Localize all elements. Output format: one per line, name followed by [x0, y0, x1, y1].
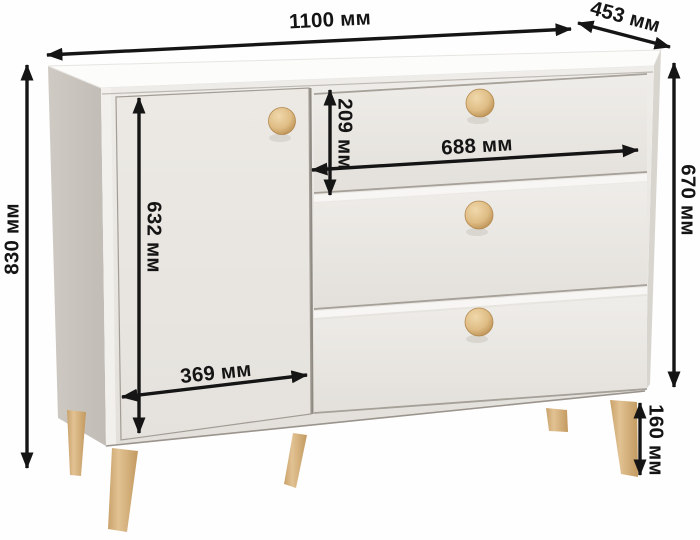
leg-front-right [610, 400, 638, 477]
door-knob [269, 108, 296, 135]
product-dimension-image: 1100 мм 453 мм 830 мм 670 мм 209 мм 688 … [0, 0, 700, 540]
dim-drawer-width-label: 688 мм [441, 132, 514, 159]
dim-leg-height-label: 160 мм [645, 404, 668, 475]
dim-overall-width-arrow [47, 29, 571, 55]
cabinet-left-side-panel [48, 66, 106, 446]
dim-drawer-height-label: 209 мм [334, 98, 357, 169]
leg-front-left [108, 448, 138, 532]
dimension-diagram-canvas: 1100 мм 453 мм 830 мм 670 мм 209 мм 688 … [0, 0, 700, 540]
leg-back-right [546, 408, 568, 432]
dim-overall-height-label: 830 мм [0, 203, 23, 274]
leg-front-middle [284, 433, 307, 488]
dim-overall-depth-label: 453 мм [588, 0, 663, 37]
dim-overall-width-label: 1100 мм [288, 6, 371, 33]
dim-body-height-label: 670 мм [677, 164, 700, 235]
dim-overall-depth: 453 мм [578, 0, 670, 47]
drawer-knob-2 [465, 201, 493, 229]
dim-overall-height: 830 мм [0, 65, 27, 468]
knob-shadow [269, 134, 291, 142]
dim-overall-width: 1100 мм [47, 6, 571, 55]
leg-back-left [67, 410, 86, 476]
dim-door-height-label: 632 мм [143, 201, 166, 272]
drawer-knob-1 [466, 89, 494, 117]
dim-body-height: 670 мм [674, 63, 700, 387]
dim-leg-height: 160 мм [640, 403, 668, 476]
drawer-knob-3 [465, 308, 493, 336]
